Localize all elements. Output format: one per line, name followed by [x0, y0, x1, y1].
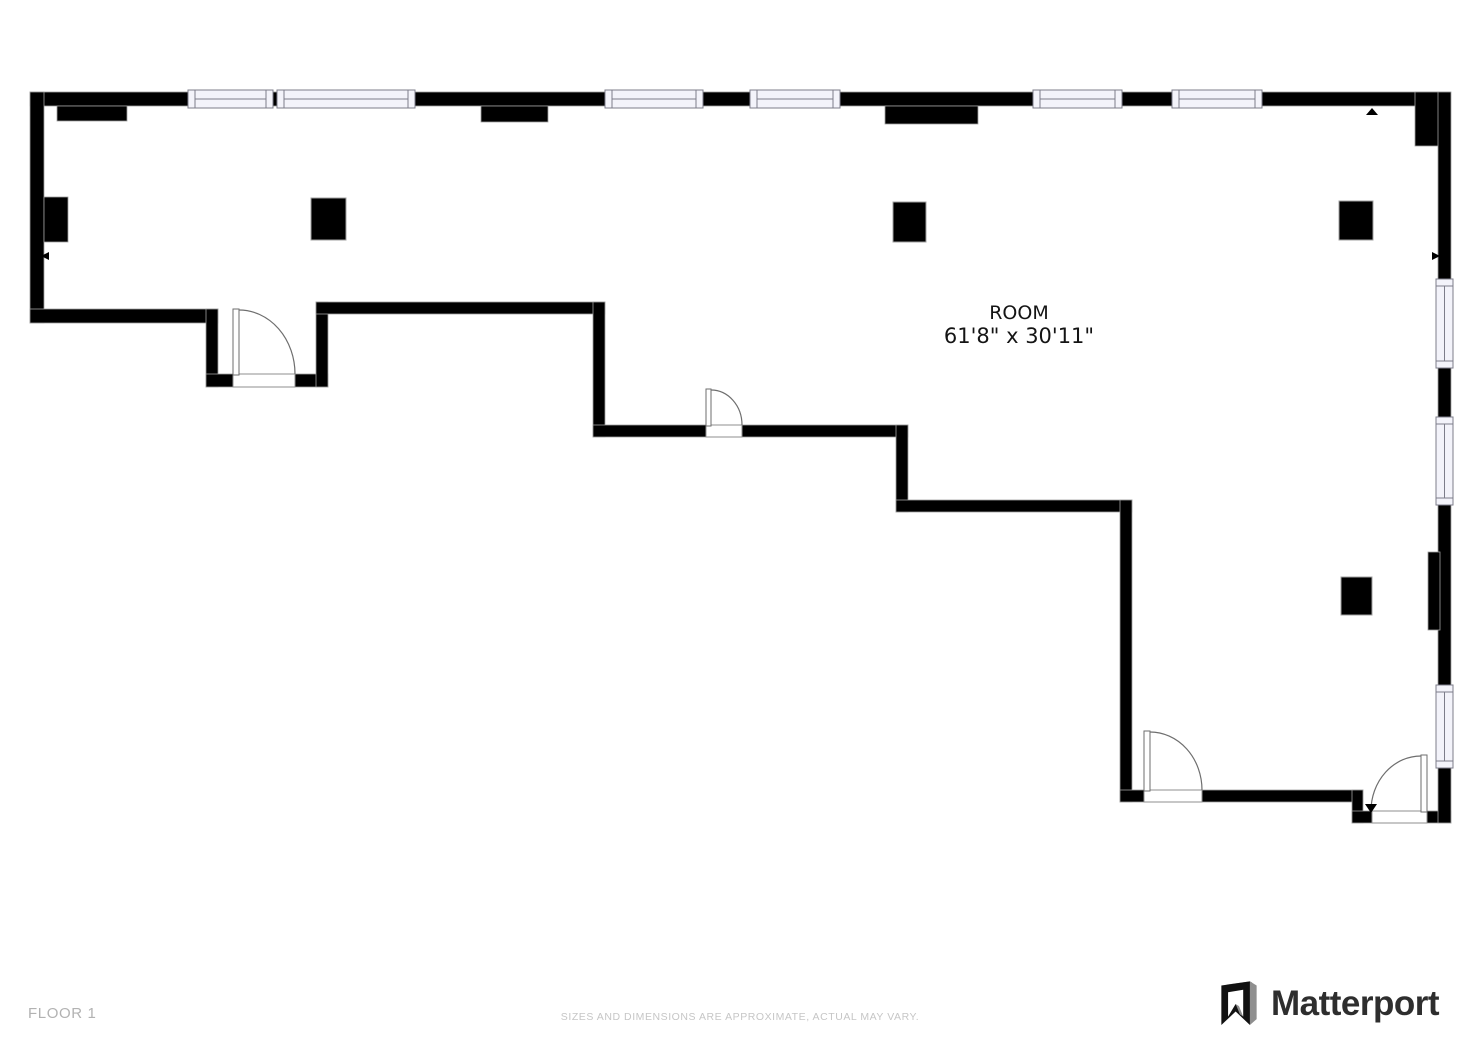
wall-segment [896, 425, 908, 512]
wall-pilaster [57, 106, 127, 121]
matterport-logo: Matterport [1218, 975, 1439, 1033]
column [893, 202, 926, 242]
window [1436, 417, 1453, 505]
marker-up-arrow-icon [1366, 108, 1378, 115]
wall-segment [30, 92, 44, 323]
wall-segment [30, 309, 218, 323]
walls [30, 92, 1451, 823]
matterport-logo-icon [1218, 976, 1260, 1032]
door [233, 309, 295, 387]
door [1365, 755, 1427, 823]
wall-segment [1120, 500, 1132, 802]
wall-segment [206, 374, 233, 387]
columns [311, 198, 1373, 615]
window [1436, 279, 1453, 368]
wall-pilaster [44, 197, 68, 242]
wall-segment [1120, 790, 1144, 802]
column [1341, 577, 1372, 615]
window [750, 90, 840, 108]
window [188, 90, 273, 108]
wall-segment [1202, 790, 1363, 802]
wall-markers [41, 108, 1440, 260]
door [1144, 731, 1202, 802]
wall-pilaster [481, 106, 548, 122]
door [706, 389, 742, 437]
column [311, 198, 346, 240]
room-name: ROOM [869, 302, 1169, 324]
wall-pilaster [1428, 552, 1440, 630]
window [277, 90, 415, 108]
column [1339, 201, 1373, 240]
wall-segment [316, 302, 328, 387]
floorplan-page: ROOM 61'8" x 30'11" FLOOR 1 SIZES AND DI… [0, 0, 1480, 1047]
window [605, 90, 703, 108]
wall-segment [1352, 811, 1372, 823]
floor-plan-svg [0, 0, 1480, 1047]
wall-segment [742, 425, 908, 437]
doors [233, 309, 1427, 823]
wall-pilaster [885, 106, 978, 124]
wall-segment [316, 302, 605, 314]
wall-segment [593, 425, 706, 437]
room-label: ROOM 61'8" x 30'11" [869, 302, 1169, 348]
window [1033, 90, 1122, 108]
matterport-wordmark: Matterport [1271, 975, 1439, 1033]
room-dimensions: 61'8" x 30'11" [869, 324, 1169, 348]
wall-segment [593, 302, 605, 437]
window [1436, 685, 1453, 768]
wall-segment [896, 500, 1132, 512]
window [1172, 90, 1262, 108]
